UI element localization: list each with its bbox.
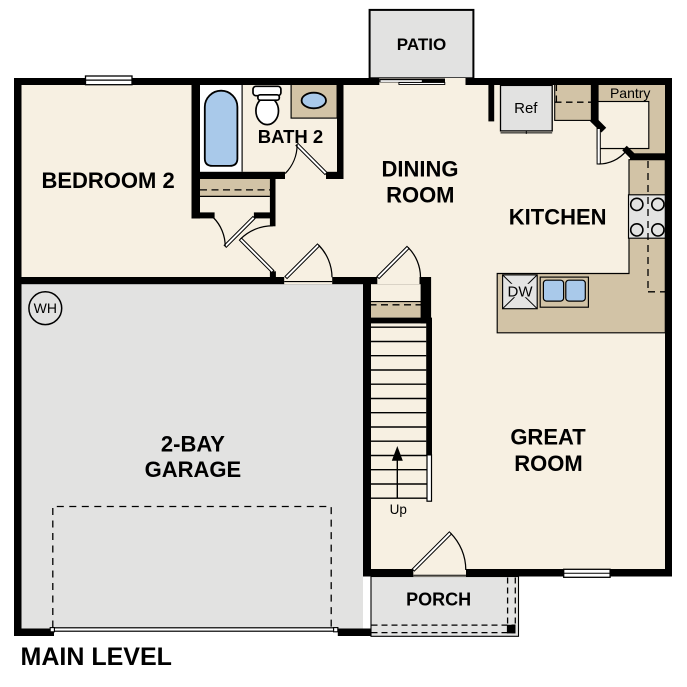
svg-text:Ref: Ref <box>514 100 538 117</box>
svg-text:PORCH: PORCH <box>406 589 471 609</box>
svg-text:KITCHEN: KITCHEN <box>509 204 607 229</box>
svg-text:Up: Up <box>390 502 407 517</box>
svg-text:BATH 2: BATH 2 <box>258 126 323 147</box>
svg-text:GREAT: GREAT <box>510 425 586 450</box>
svg-text:WH: WH <box>34 300 57 316</box>
svg-text:BEDROOM 2: BEDROOM 2 <box>41 168 174 193</box>
svg-text:2-BAY: 2-BAY <box>161 432 225 457</box>
svg-text:GARAGE: GARAGE <box>145 457 242 482</box>
svg-text:ROOM: ROOM <box>386 183 454 208</box>
svg-text:PATIO: PATIO <box>397 35 446 54</box>
svg-text:DINING: DINING <box>382 156 459 181</box>
svg-text:ROOM: ROOM <box>514 451 582 476</box>
svg-text:MAIN LEVEL: MAIN LEVEL <box>21 643 172 671</box>
svg-text:Pantry: Pantry <box>610 85 650 101</box>
svg-text:DW: DW <box>508 284 534 301</box>
